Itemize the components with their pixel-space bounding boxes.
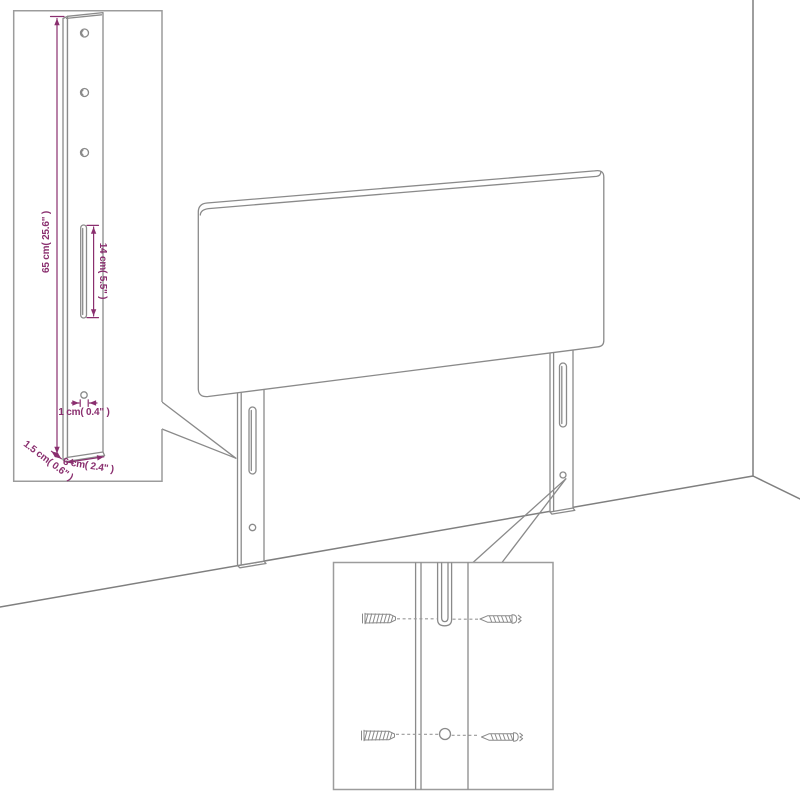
hardware-detail-callout: [334, 563, 554, 790]
floor-edge-right: [753, 476, 800, 499]
left-leg-hole: [249, 524, 255, 530]
left-leg-slot: [249, 407, 256, 474]
leader-line: [162, 402, 236, 458]
right-leg-slot: [560, 363, 567, 427]
leg-bracket: [63, 13, 105, 462]
headboard-right-leg: [550, 343, 575, 515]
dimension-label-slot: 14 cm( 5.5" ): [97, 243, 108, 300]
leg-detail-callout: 65 cm( 25.6" ) 14 cm( 5.5" ) 1 cm( 0.4" …: [14, 11, 162, 484]
diagram-canvas: 65 cm( 25.6" ) 14 cm( 5.5" ) 1 cm( 0.4" …: [0, 0, 800, 800]
callout-leader-right: [473, 479, 566, 563]
leader-line: [473, 479, 566, 563]
bracket-side-face: [63, 16, 68, 459]
leg-hole-detail: [440, 729, 451, 740]
leader-line: [502, 479, 566, 563]
dimension-label-height: 65 cm( 25.6" ): [41, 211, 52, 273]
right-leg-hole: [560, 472, 566, 478]
headboard-left-leg: [238, 384, 267, 568]
leader-line: [162, 429, 236, 458]
callout-leader-left: [162, 402, 236, 458]
headboard-diagram: 65 cm( 25.6" ) 14 cm( 5.5" ) 1 cm( 0.4" …: [0, 0, 800, 800]
callout-background: [334, 563, 554, 790]
bracket-slot: [81, 225, 87, 318]
bracket-small-hole: [81, 392, 87, 398]
dimension-label-hole: 1 cm( 0.4" ): [58, 407, 109, 418]
